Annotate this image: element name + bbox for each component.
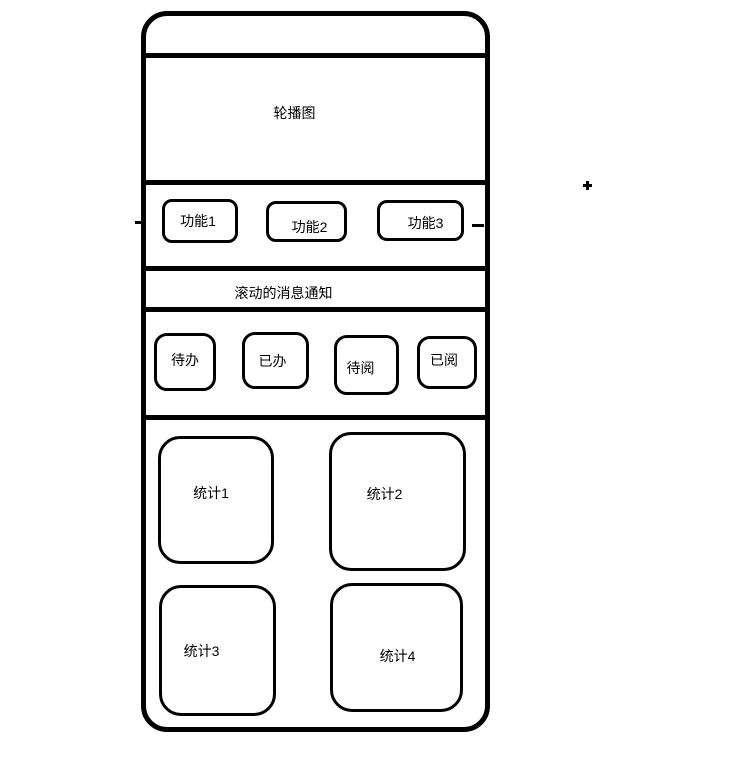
notification-label: 滚动的消息通知 [235, 286, 333, 300]
task-button-read-label: 已阅 [430, 353, 458, 367]
stat-card-1-label: 统计1 [193, 486, 229, 500]
function-button-2-label: 功能2 [292, 220, 328, 234]
stat-card-4-label: 统计4 [380, 649, 416, 663]
stat-card-3-label: 统计3 [184, 644, 220, 658]
task-button-read[interactable]: 已阅 [417, 336, 477, 389]
function-button-3-label: 功能3 [408, 216, 444, 230]
left-tick-mark [135, 221, 144, 224]
task-button-done[interactable]: 已办 [242, 332, 309, 389]
function-button-2[interactable]: 功能2 [266, 201, 347, 242]
task-button-todo-label: 待办 [171, 353, 199, 367]
stat-card-3[interactable]: 统计3 [159, 585, 276, 716]
stat-card-4[interactable]: 统计4 [330, 583, 463, 712]
stat-card-2-label: 统计2 [367, 487, 403, 501]
task-button-toread[interactable]: 待阅 [334, 335, 399, 395]
function-button-1-label: 功能1 [180, 214, 216, 228]
status-bar-region [146, 16, 485, 58]
task-button-toread-label: 待阅 [347, 361, 375, 375]
task-button-done-label: 已办 [259, 354, 287, 368]
carousel-label: 轮播图 [274, 106, 316, 120]
notification-bar: 滚动的消息通知 [146, 271, 485, 312]
wireframe-canvas: 轮播图 滚动的消息通知 功能1 功能2 功能3 待办 已办 待阅 已阅 统计1 … [0, 0, 739, 768]
carousel-region: 轮播图 [146, 58, 485, 185]
function-button-1[interactable]: 功能1 [162, 199, 238, 243]
task-button-todo[interactable]: 待办 [154, 333, 216, 391]
stat-card-2[interactable]: 统计2 [329, 432, 466, 571]
right-tick-mark [472, 224, 484, 227]
function-button-3[interactable]: 功能3 [377, 200, 464, 241]
stat-card-1[interactable]: 统计1 [158, 436, 274, 564]
